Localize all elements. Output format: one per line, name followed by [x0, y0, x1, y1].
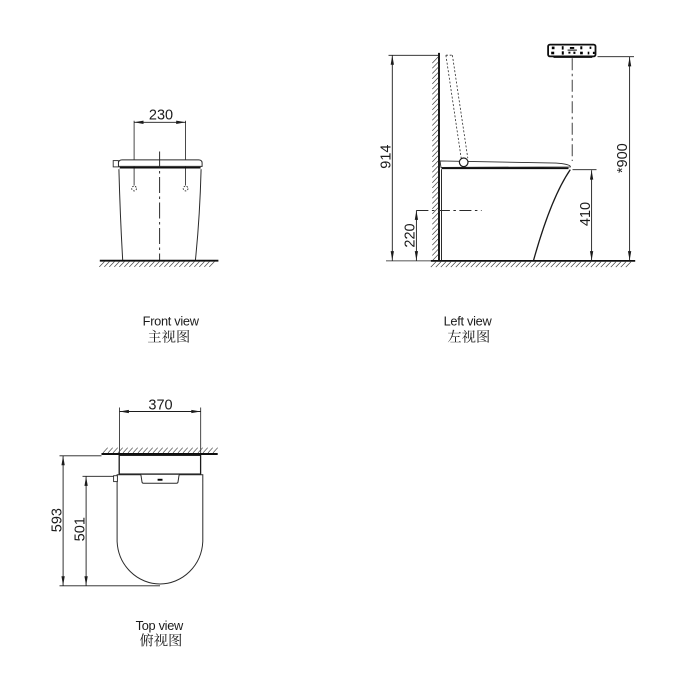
- svg-text:*900: *900: [615, 143, 631, 173]
- svg-text:Front view: Front view: [143, 314, 200, 329]
- svg-text:230: 230: [149, 108, 173, 124]
- svg-text:220: 220: [402, 223, 418, 247]
- svg-text:914: 914: [378, 144, 394, 168]
- svg-text:410: 410: [578, 202, 594, 226]
- svg-text:593: 593: [50, 508, 66, 532]
- svg-text:Top view: Top view: [136, 618, 184, 633]
- svg-text:501: 501: [73, 517, 89, 541]
- svg-text:Left view: Left view: [444, 314, 493, 329]
